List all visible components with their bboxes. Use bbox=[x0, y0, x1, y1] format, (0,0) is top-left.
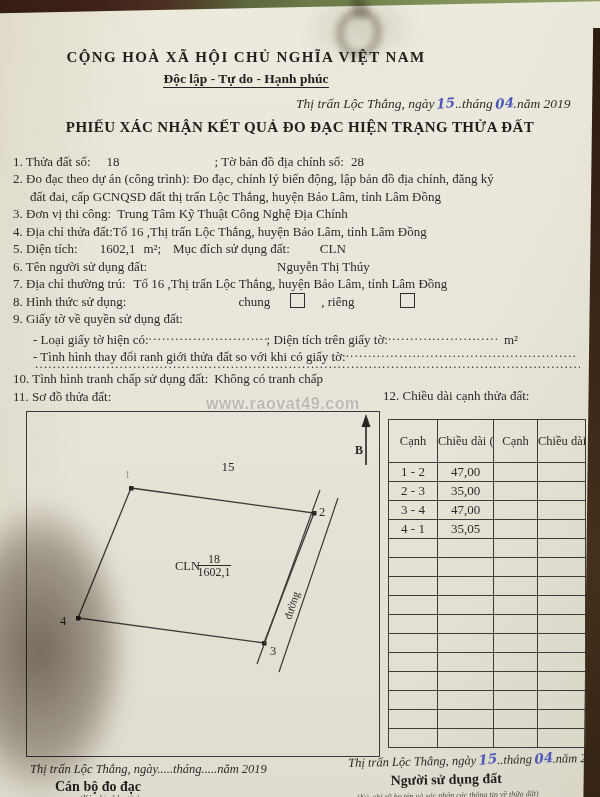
empty-cell bbox=[494, 520, 538, 539]
item-3: 3. Đơn vị thi công:Trung Tâm Kỹ Thuật Cô… bbox=[13, 206, 348, 222]
land-user-name: Nguyễn Thị Thúy bbox=[277, 259, 370, 274]
vertex-1-label: 1 bbox=[125, 469, 130, 480]
table-empty-row bbox=[389, 691, 586, 710]
land-use-label: CLN bbox=[175, 559, 200, 573]
watermark: www.raovat49.com bbox=[206, 395, 360, 413]
table-empty-row bbox=[389, 653, 586, 672]
handwritten-month: 04 bbox=[493, 94, 513, 112]
table-empty-row bbox=[389, 558, 586, 577]
road-line-1 bbox=[257, 490, 320, 664]
header-edge-1: Cạnh bbox=[389, 420, 438, 463]
checkbox-private-use bbox=[400, 293, 415, 308]
surveyor-unit: Trung Tâm Kỹ Thuật Công Nghệ Địa Chính bbox=[117, 206, 348, 221]
map-sheet-number: 28 bbox=[351, 154, 364, 169]
header-length-2: Chiều dài (m) bbox=[538, 420, 586, 463]
national-title: CỘNG HOÀ XÃ HỘI CHỦ NGHĨA VIỆT NAM bbox=[0, 49, 492, 66]
table-empty-row bbox=[389, 672, 586, 691]
surveyor-role-title: Cán bộ đo đạc bbox=[55, 779, 141, 795]
residence-address: Tổ 16 ,Thị trấn Lộc Thắng, huyện Bảo Lâm… bbox=[134, 276, 448, 291]
length-cell: 35,00 bbox=[438, 482, 494, 501]
table-row: 2 - 335,00 bbox=[389, 482, 586, 501]
length-cell: 35,05 bbox=[438, 520, 494, 539]
header-length-1: Chiều dài (m) bbox=[438, 420, 494, 463]
land-use-code: CLN bbox=[320, 241, 346, 256]
empty-cell bbox=[494, 482, 538, 501]
table-empty-row bbox=[389, 710, 586, 729]
land-user-role-title: Người sử dụng đất bbox=[390, 769, 600, 790]
header-edge-2: Cạnh bbox=[494, 420, 538, 463]
parcel-number: 18 bbox=[107, 154, 120, 169]
item-8: 8. Hình thức sử dụng:chung, riêng bbox=[13, 293, 415, 310]
adjacent-parcel-label: 15 bbox=[222, 459, 235, 474]
document-page: CỘNG HOÀ XÃ HỘI CHỦ NGHĨA VIỆT NAM Độc l… bbox=[0, 0, 600, 797]
item-7: 7. Địa chỉ thường trú:Tổ 16 ,Thị trấn Lộ… bbox=[13, 276, 447, 292]
header-date-line: Thị trấn Lộc Thắng, ngày15..tháng04.năm … bbox=[296, 95, 571, 112]
edge-length-table: Cạnh Chiều dài (m) Cạnh Chiều dài (m) 1 … bbox=[388, 419, 586, 748]
item-4: 4. Địa chỉ thửa đất:Tổ 16 ,Thị trấn Lộc … bbox=[13, 224, 427, 240]
table-header-row: Cạnh Chiều dài (m) Cạnh Chiều dài (m) bbox=[389, 420, 586, 463]
table-empty-row bbox=[389, 634, 586, 653]
table-empty-row bbox=[389, 577, 586, 596]
handwritten-day-bottom: 15 bbox=[476, 750, 497, 768]
vertex-1-marker bbox=[129, 486, 134, 491]
parcel-sketch-drawing: 1 2 3 4 15 CLN 18 1602,1 đường B bbox=[27, 412, 379, 756]
surveyor-date-line: Thị trấn Lộc Thắng, ngày.....tháng.....n… bbox=[30, 762, 267, 777]
empty-cell bbox=[494, 501, 538, 520]
parcel-sketch: 1 2 3 4 15 CLN 18 1602,1 đường B bbox=[26, 411, 380, 757]
item-5: 5. Diện tích:1602,1m²;Mục đích sử dụng đ… bbox=[13, 241, 346, 257]
north-arrow-head bbox=[362, 414, 371, 427]
national-motto: Độc lập - Tự do - Hạnh phúc bbox=[0, 71, 492, 87]
item-12: 12. Chiều dài cạnh thửa đất: bbox=[383, 388, 529, 404]
vertex-4-marker bbox=[76, 616, 81, 621]
parcel-number-label: 18 bbox=[208, 552, 220, 566]
edge-cell: 2 - 3 bbox=[389, 482, 438, 501]
item-2-line1: 2. Đo đạc theo dự án (công trình): Đo đạ… bbox=[13, 171, 494, 187]
road-line-2 bbox=[279, 498, 338, 672]
edge-cell: 4 - 1 bbox=[389, 520, 438, 539]
edge-cell: 1 - 2 bbox=[389, 463, 438, 482]
empty-cell bbox=[538, 482, 586, 501]
road-label: đường bbox=[281, 590, 301, 621]
table-empty-row bbox=[389, 729, 586, 748]
handwritten-day: 15 bbox=[435, 94, 455, 112]
handwritten-month-bottom: 04 bbox=[532, 749, 553, 767]
north-label: B bbox=[355, 443, 363, 457]
land-user-signature-block: Thị trấn Lộc Thắng, ngày15..tháng04.năm … bbox=[348, 749, 600, 797]
empty-cell bbox=[494, 463, 538, 482]
vertex-2-label: 2 bbox=[319, 505, 325, 519]
table-row: 3 - 447,00 bbox=[389, 501, 586, 520]
vertex-3-label: 3 bbox=[270, 644, 276, 658]
length-cell: 47,00 bbox=[438, 501, 494, 520]
item-11: 11. Sơ đồ thửa đất: bbox=[13, 389, 111, 405]
table-row: 1 - 247,00 bbox=[389, 463, 586, 482]
item-10: 10. Tình hình tranh chấp sử dụng đất:Khô… bbox=[13, 371, 323, 387]
checkbox-shared-use bbox=[290, 293, 305, 308]
parcel-area-label: 1602,1 bbox=[198, 565, 231, 579]
edge-cell: 3 - 4 bbox=[389, 501, 438, 520]
empty-cell bbox=[538, 520, 586, 539]
item-2-line2: đất đai, cấp GCNQSD đất thị trấn Lộc Thắ… bbox=[30, 189, 441, 205]
table-row: 4 - 135,05 bbox=[389, 520, 586, 539]
item-6: 6. Tên người sử dụng đất:Nguyễn Thị Thúy bbox=[13, 259, 370, 275]
empty-cell bbox=[538, 501, 586, 520]
dispute-status: Không có tranh chấp bbox=[214, 371, 323, 386]
table-empty-row bbox=[389, 539, 586, 558]
land-user-date-line: Thị trấn Lộc Thắng, ngày15..tháng04.năm … bbox=[348, 749, 600, 771]
item-1: 1. Thửa đất số:18; Tờ bản đồ địa chính s… bbox=[13, 154, 364, 170]
empty-cell bbox=[538, 463, 586, 482]
item-9: 9. Giấy tờ về quyền sử dụng đất: bbox=[13, 311, 183, 327]
vertex-4-label: 4 bbox=[60, 614, 67, 628]
length-cell: 47,00 bbox=[438, 463, 494, 482]
form-title: PHIẾU XÁC NHẬN KẾT QUẢ ĐO ĐẠC HIỆN TRẠNG… bbox=[0, 119, 600, 136]
area-value: 1602,1 bbox=[100, 241, 136, 256]
table-empty-row bbox=[389, 615, 586, 634]
table-empty-row bbox=[389, 596, 586, 615]
parcel-address: Tổ 16 ,Thị trấn Lộc Thắng, huyện Bảo Lâm… bbox=[113, 224, 427, 239]
